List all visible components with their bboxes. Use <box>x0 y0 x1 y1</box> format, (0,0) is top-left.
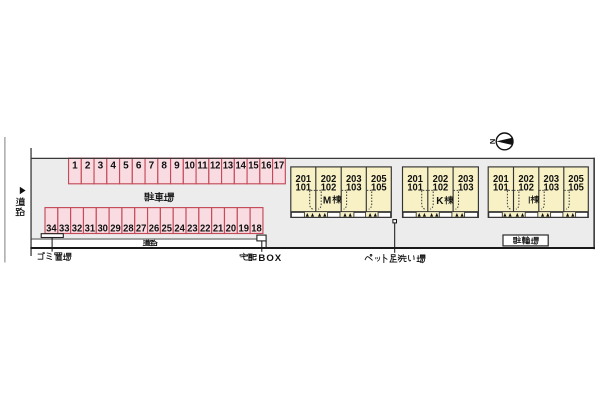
svg-text:4: 4 <box>110 161 116 172</box>
svg-text:6: 6 <box>136 161 142 172</box>
svg-text:1: 1 <box>72 161 78 172</box>
svg-text:21: 21 <box>213 224 224 235</box>
svg-text:22: 22 <box>200 224 211 235</box>
svg-text:103: 103 <box>346 183 362 194</box>
svg-text:29: 29 <box>110 224 121 235</box>
svg-text:101: 101 <box>407 183 423 194</box>
svg-text:17: 17 <box>274 161 285 172</box>
svg-text:102: 102 <box>518 183 534 194</box>
svg-text:31: 31 <box>85 224 96 235</box>
svg-text:3: 3 <box>98 161 104 172</box>
svg-text:14: 14 <box>235 161 246 172</box>
svg-text:I: I <box>528 196 531 207</box>
svg-text:23: 23 <box>187 224 198 235</box>
svg-text:105: 105 <box>568 183 584 194</box>
svg-text:27: 27 <box>136 224 147 235</box>
svg-text:8: 8 <box>161 161 167 172</box>
svg-text:7: 7 <box>149 161 155 172</box>
svg-text:12: 12 <box>210 161 221 172</box>
svg-text:N: N <box>488 139 497 144</box>
svg-text:28: 28 <box>123 224 134 235</box>
svg-text:18: 18 <box>251 224 262 235</box>
svg-text:16: 16 <box>261 161 272 172</box>
svg-text:30: 30 <box>97 224 108 235</box>
svg-text:K: K <box>436 196 444 207</box>
svg-text:9: 9 <box>174 161 180 172</box>
svg-text:20: 20 <box>226 224 237 235</box>
svg-text:105: 105 <box>371 183 387 194</box>
svg-text:BOX: BOX <box>258 253 282 264</box>
svg-text:101: 101 <box>493 183 509 194</box>
svg-text:26: 26 <box>149 224 160 235</box>
svg-text:10: 10 <box>184 161 195 172</box>
svg-text:103: 103 <box>544 183 560 194</box>
svg-text:102: 102 <box>433 183 449 194</box>
svg-text:24: 24 <box>174 224 185 235</box>
svg-text:19: 19 <box>238 224 249 235</box>
svg-text:M: M <box>323 196 331 207</box>
svg-text:102: 102 <box>321 183 337 194</box>
svg-text:13: 13 <box>223 161 234 172</box>
svg-text:11: 11 <box>197 161 208 172</box>
svg-text:32: 32 <box>72 224 83 235</box>
svg-text:2: 2 <box>85 161 91 172</box>
svg-text:15: 15 <box>248 161 259 172</box>
svg-text:25: 25 <box>162 224 173 235</box>
svg-text:103: 103 <box>458 183 474 194</box>
svg-text:34: 34 <box>46 224 57 235</box>
svg-text:5: 5 <box>123 161 129 172</box>
svg-text:33: 33 <box>59 224 70 235</box>
